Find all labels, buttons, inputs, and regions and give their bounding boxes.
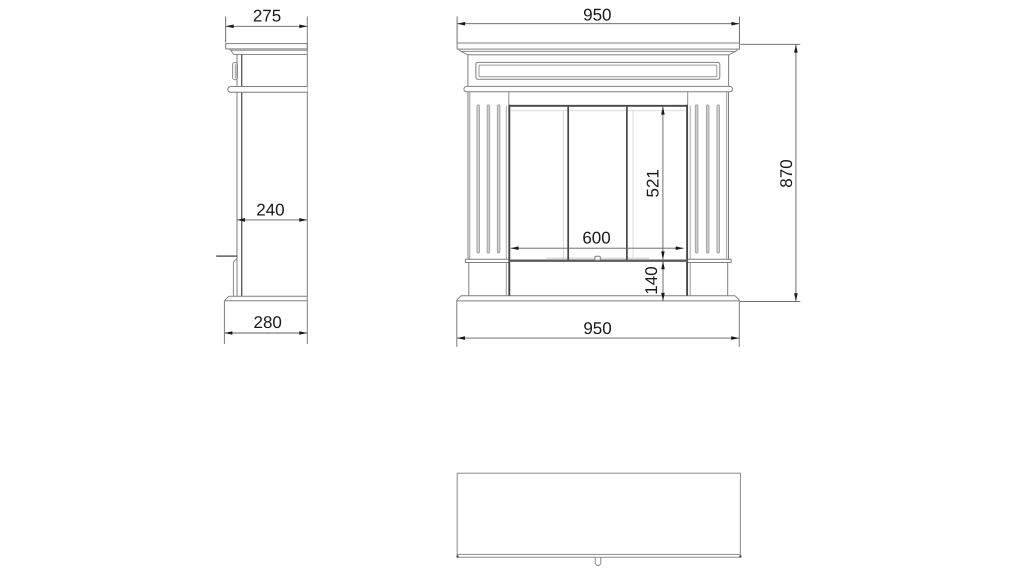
svg-text:240: 240 <box>256 200 284 219</box>
svg-text:521: 521 <box>643 169 662 197</box>
svg-text:950: 950 <box>583 6 611 25</box>
svg-text:280: 280 <box>254 313 282 332</box>
svg-text:140: 140 <box>642 266 661 294</box>
svg-text:870: 870 <box>777 159 796 187</box>
svg-text:950: 950 <box>583 319 611 338</box>
svg-text:600: 600 <box>582 229 610 248</box>
svg-text:275: 275 <box>253 7 281 26</box>
